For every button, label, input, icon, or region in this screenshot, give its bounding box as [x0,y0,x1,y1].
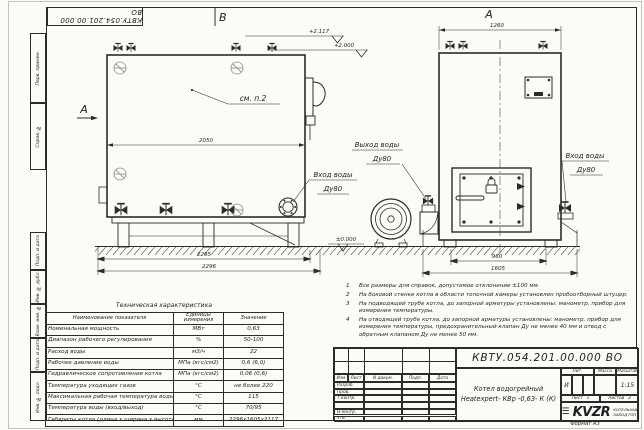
param-name: Максимальная рабочая температура воды [46,392,174,403]
table-header-row: Наименование показателя Единицы измерени… [46,313,284,325]
leg [203,223,214,247]
param-unit: % [174,336,224,347]
dim-text: 2050 [199,138,213,144]
col-list: Лист [348,374,364,382]
sig-cell [429,395,456,402]
note-text: Все размеры для справок, допустимое откл… [359,283,634,290]
sig-cell [429,409,456,416]
left-view-side [99,55,325,247]
leg [444,240,456,247]
dim-text: 1605 [491,266,505,272]
row-razrab: Разраб. [334,382,364,389]
note-number: 2 [346,292,359,299]
col-dokum: N докум. [364,374,402,382]
sig-cell [429,382,456,389]
sig-cell [429,402,456,409]
sig-cell [402,409,429,416]
inlet-label-left: Вход воды Ду80 [293,171,357,202]
param-name: Температура уходящих газов [46,381,174,392]
sig-cell [402,395,429,402]
sheets-label: Листов [608,396,624,401]
lit-cell [583,375,594,395]
table-row: Температура воды (вход/выход)°С70/95 [46,403,284,414]
sig-cell [364,409,402,416]
dim-text: 2296 [202,264,216,270]
dim-text: 1260 [490,23,504,29]
row-utv: Утв. [334,416,364,423]
sheet-value: 1 [587,396,590,401]
sig-cell [429,389,456,396]
right-view-front [423,26,577,253]
format-value: А3 [593,421,600,427]
note-ref-text: см. п.2 [240,94,267,103]
note-text: На отводящей трубе котла, до запорной ар… [359,317,634,339]
param-name: Номинальная мощность [46,324,174,335]
section-letter: А [79,103,88,116]
elevation-text: +2.117 [309,29,330,35]
tech-table-title: Техническая характеристика [45,300,283,312]
sig-cell [364,382,402,389]
sheets-value: 2 [628,396,631,401]
tech-characteristics: Техническая характеристика Наименование … [45,300,283,427]
sheet-label: Лист [572,396,583,401]
row-tkontr: Т.контр. [334,395,364,402]
param-value: 2296х1605х2117 [224,415,284,426]
sig-cell [364,416,402,423]
param-unit: МПа (кгс/см2) [174,370,224,381]
leg [545,240,557,247]
section-marker-A: А [77,103,98,120]
row-blank [334,402,364,409]
param-unit: МПа (кгс/см2) [174,358,224,369]
outlet-label: Выход воды Ду80 [352,141,426,199]
param-name: Температура воды (вход/выход) [46,403,174,414]
param-unit: МВт [174,324,224,335]
note-item: 2На боковой стенке котла в области топоч… [346,292,634,299]
tech-table: Наименование показателя Единицы измерени… [45,312,284,427]
format-note: Формат А3 [540,421,630,427]
flue-outlet [305,78,325,140]
mass-value [594,375,616,395]
logo-text: KVZR [573,405,611,420]
leg [118,223,129,247]
dim-text: 960 [492,254,503,260]
table-row: Гидравлическое сопротивление котлаМПа (к… [46,370,284,381]
table-row: Диапазон рабочего регулирования%50-100 [46,336,284,347]
pipe-dn: Ду80 [372,155,392,163]
note-item: 4На отводящей трубе котла, до запорной а… [346,317,634,339]
scale-value: 1:15 [616,375,639,395]
inspection-panel [525,77,552,98]
pipe-label: Вход воды [565,152,605,160]
note-number: 4 [346,317,359,339]
format-label: Формат [570,421,591,427]
sig-cell [402,416,429,423]
note-text: На подводящей трубе котла, до запорной а… [359,301,634,316]
note-item: 3На подводящей трубе котла, до запорной … [346,301,634,316]
row-prov: Пров. [334,389,364,396]
blower-fan [371,199,438,247]
note-number: 1 [346,283,359,290]
dim-2050: 2050 [107,138,305,147]
elevation-text: +2.000 [334,43,355,49]
section-letter: В [219,11,227,24]
product-name-line2: Heatexpert- КВр -0,63- К (К) [461,395,556,405]
drawing-sheet: Перв. примен. Справ. № Подп. и дата Инв.… [0,0,644,430]
table-row: Температура уходящих газов°Сне более 220 [46,381,284,392]
param-name: Рабочее давление воды [46,358,174,369]
param-value: 0,06 (0,6) [224,370,284,381]
sig-cell [364,402,402,409]
param-value: 70/95 [224,403,284,414]
note-ref-leader: см. п.2 [191,89,280,104]
dim-text: 2295 [197,252,211,258]
note-number: 3 [346,301,359,316]
table-row: Максимальная рабочая температура воды°С1… [46,392,284,403]
param-unit: °С [174,392,224,403]
doc-number: КВТУ.054.201.00.000 ВО [456,348,639,368]
furnace-door [452,168,531,232]
notes-list: 1Все размеры для справок, допустимое отк… [346,283,634,341]
ground-line [95,247,580,256]
sig-cell [402,389,429,396]
boiler-shell-side [107,55,305,217]
sig-cell [364,395,402,402]
col-data: Дата [429,374,456,382]
lit-cell [572,375,583,395]
param-value: 50-100 [224,336,284,347]
hinge-arrow-icon [517,203,525,210]
title-block: Изм Лист N докум. Подп. Дата Разраб. Про… [333,347,638,421]
table-row: Габариты котла (длина х ширина х высота)… [46,415,284,426]
sig-cell [429,416,456,423]
table-row: Номинальная мощностьМВт0,63 [46,324,284,335]
col-header: Наименование показателя [46,313,174,325]
table-row: Рабочее давление водыМПа (кгс/см2)0,6 (6… [46,358,284,369]
table-row: Расход водым3/ч22 [46,347,284,358]
param-unit: мм [174,415,224,426]
section-marker-B: В [215,8,227,26]
param-unit: °С [174,403,224,414]
note-text: На боковой стенке котла в области топочн… [359,292,634,299]
hinge-arrow-icon [517,183,525,190]
pipe-dn: Ду80 [323,185,343,193]
param-value: 0,63 [224,324,284,335]
param-value: 22 [224,347,284,358]
param-unit: °С [174,381,224,392]
side-bracket [99,187,107,203]
leg [288,223,299,247]
param-value: не более 220 [224,381,284,392]
param-value: 0,6 (6,0) [224,358,284,369]
mass-header: Масса [594,368,616,375]
pipe-label: Выход воды [355,141,400,149]
col-header: Единицы измерения [174,313,224,325]
scale-header: Масштаб [616,368,639,375]
param-name: Диапазон рабочего регулирования [46,336,174,347]
lit-header: Лит. [561,368,594,375]
param-value: 115 [224,392,284,403]
col-podp: Подп. [402,374,429,382]
inlet-label-right: Вход воды Ду80 [562,152,609,202]
param-name: Габариты котла (длина х ширина х высота) [46,415,174,426]
product-name: Котел водогрейный Heatexpert- КВр -0,63-… [456,368,561,422]
product-name-line1: Котел водогрейный [474,385,543,395]
base-rail [112,217,304,223]
sig-cell [402,382,429,389]
pipe-label: Вход воды [313,171,353,179]
param-unit: м3/ч [174,347,224,358]
pipe-dn: Ду80 [576,166,596,174]
company-logo: ☰ KVZR КОТЕЛЬНЫЙ ЗАВОД РЭП [561,402,639,422]
param-name: Расход воды [46,347,174,358]
param-name: Гидравлическое сопротивление котла [46,370,174,381]
company-line2: ЗАВОД РЭП [613,412,636,417]
row-nkontr: Н.контр. [334,409,364,416]
sheet-cell: Лист1 [561,395,600,402]
elevation-text: ±0.000 [336,237,357,243]
sig-cell [364,389,402,396]
col-header: Значение [224,313,284,325]
col-izm: Изм [334,374,348,382]
company-name: КОТЕЛЬНЫЙ ЗАВОД РЭП [613,407,638,417]
view-a-label: А [484,8,493,21]
note-item: 1Все размеры для справок, допустимое отк… [346,283,634,290]
sheets-cell: Листов2 [600,395,639,402]
logo-bars-icon: ☰ [562,407,570,417]
sig-cell [402,402,429,409]
lit-value: И [561,375,572,395]
